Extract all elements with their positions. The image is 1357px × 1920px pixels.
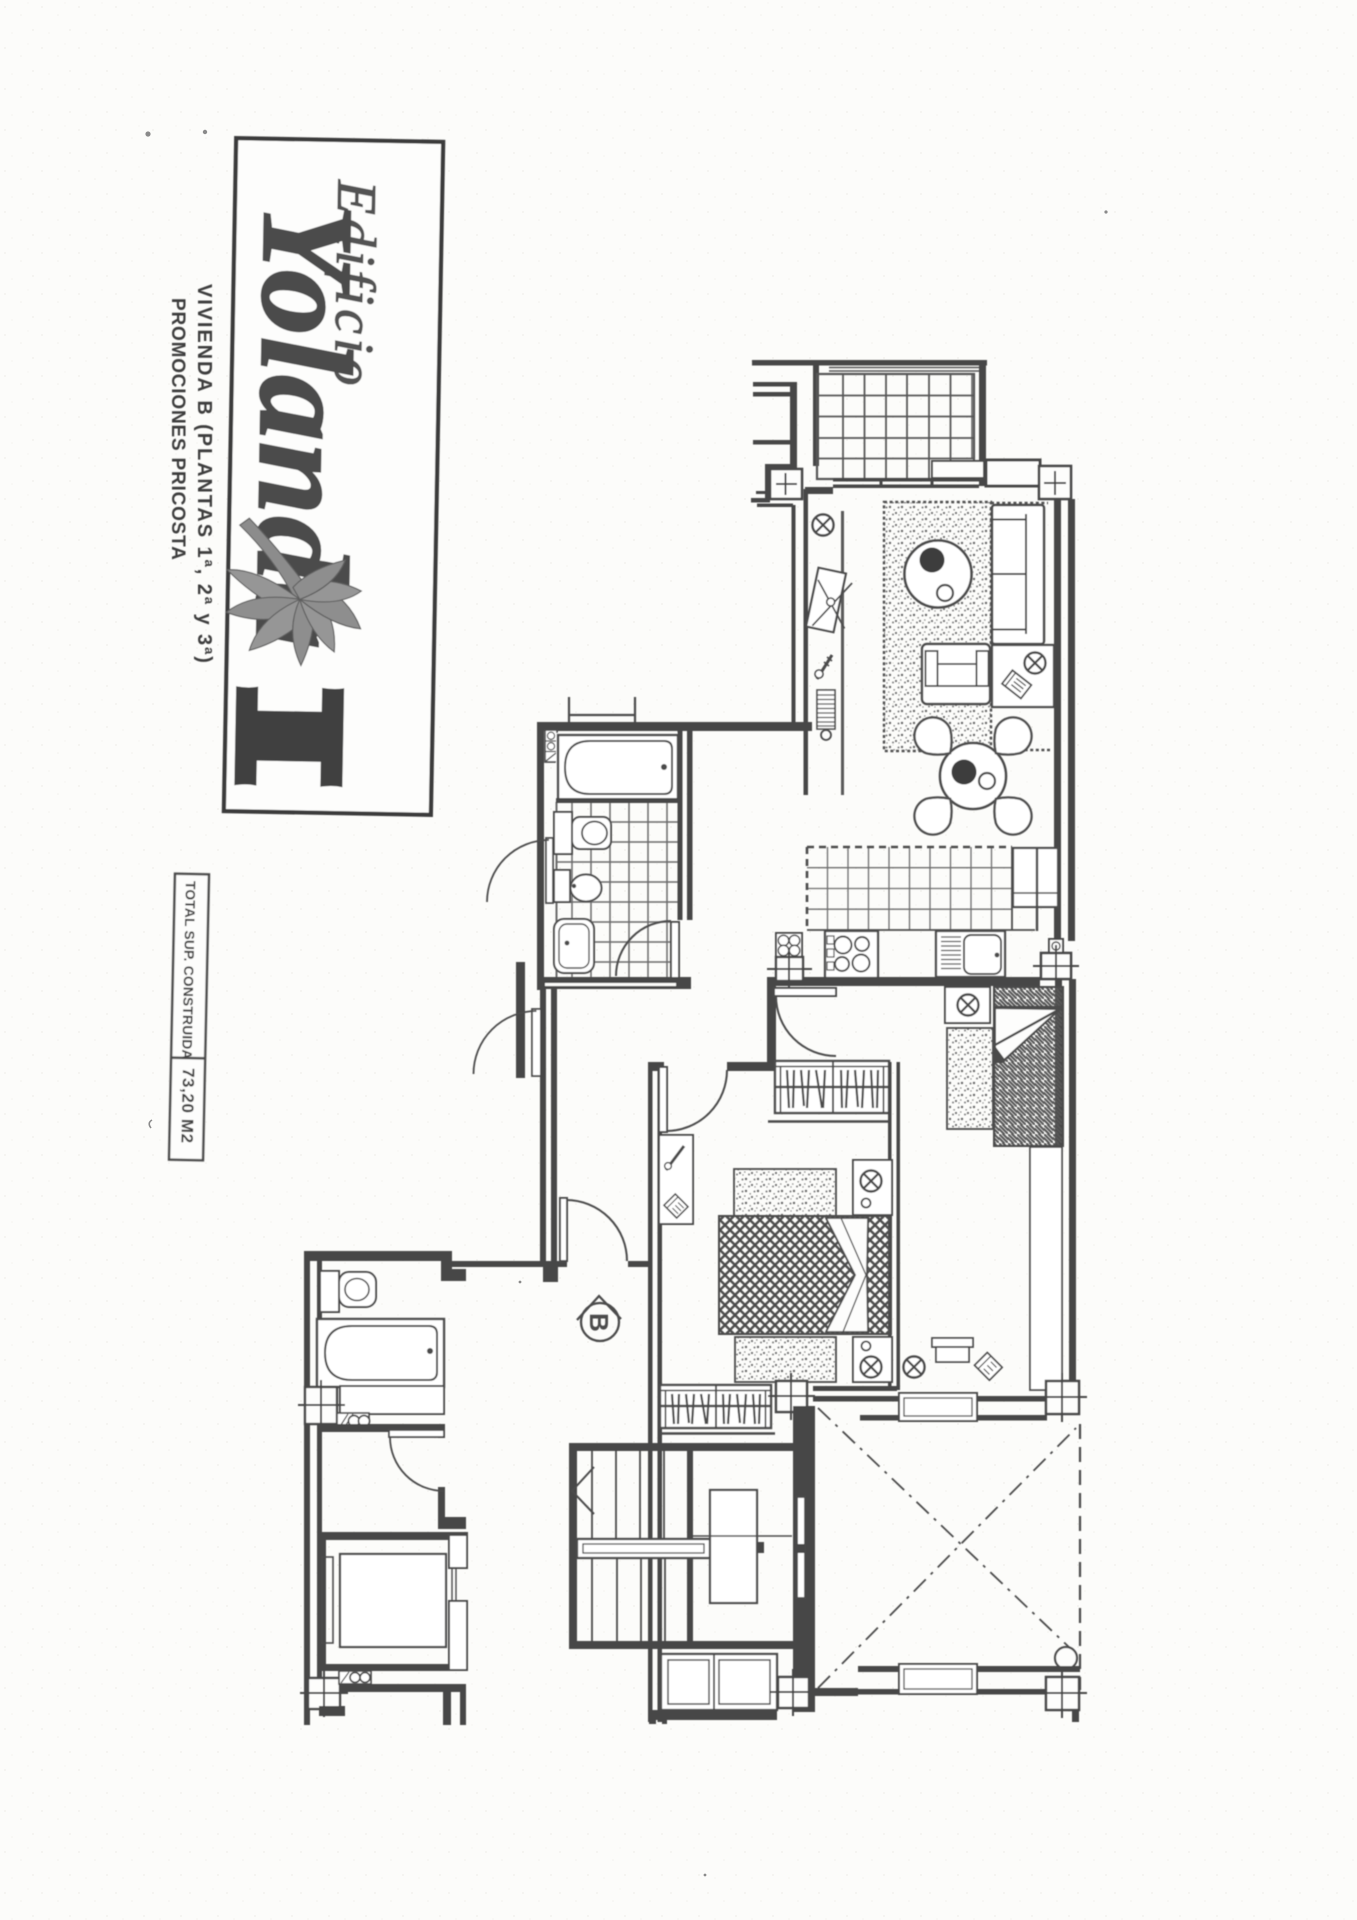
svg-text:VIVIENDA B (PLANTAS 1ª, 2ª y: VIVIENDA B (PLANTAS 1ª, 2ª y 3ª) bbox=[193, 284, 215, 665]
svg-text:PROMOCIONES PRICOSTA: PROMOCIONES PRICOSTA bbox=[167, 298, 188, 561]
svg-text:B: B bbox=[584, 1313, 614, 1332]
svg-text:73,20 M2: 73,20 M2 bbox=[177, 1068, 198, 1144]
